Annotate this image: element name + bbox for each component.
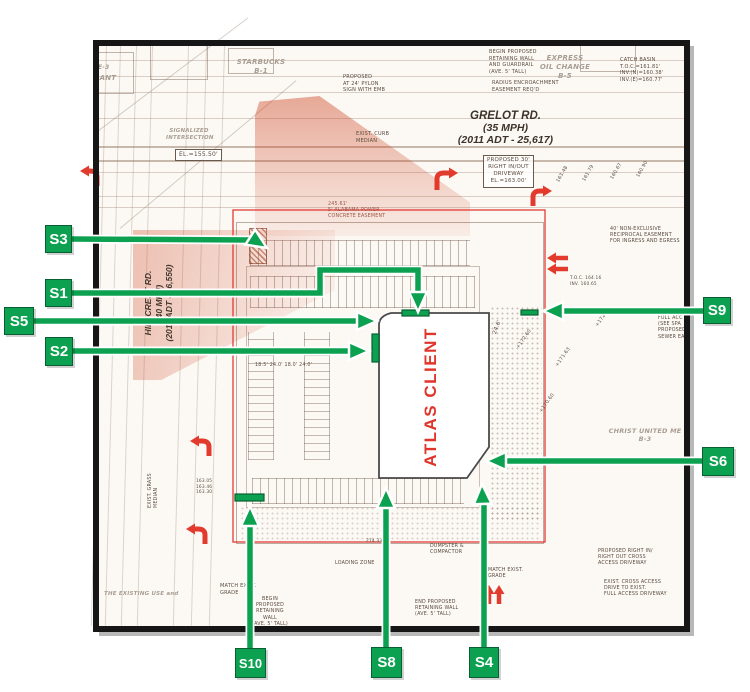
callout-s8[interactable]: S8 [371, 647, 402, 678]
callout-s1[interactable]: S1 [45, 279, 72, 307]
callout-s5[interactable]: S5 [4, 307, 34, 335]
callout-s6[interactable]: S6 [702, 447, 734, 476]
plan-background [99, 46, 684, 626]
callout-s2[interactable]: S2 [45, 337, 73, 366]
callout-s3[interactable]: S3 [45, 225, 72, 253]
site-plan-figure: E-3RANTSTARBUCKS B-1EXPRESS OIL CHANGE B… [0, 0, 750, 692]
callout-s4[interactable]: S4 [469, 647, 499, 678]
callout-s9[interactable]: S9 [703, 297, 731, 324]
callout-s10[interactable]: S10 [235, 648, 266, 678]
